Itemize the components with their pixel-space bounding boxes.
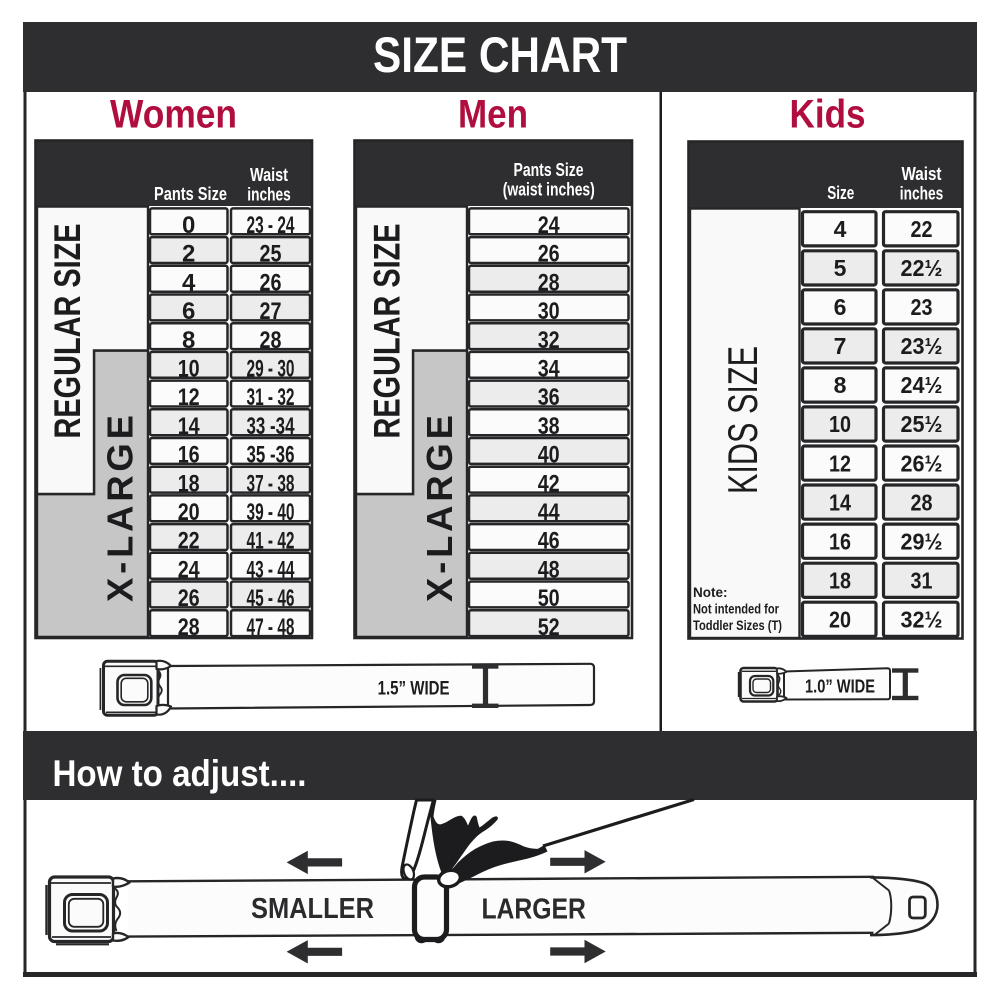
svg-text:25: 25 [260, 241, 282, 268]
svg-text:24: 24 [178, 556, 201, 583]
svg-text:Women: Women [110, 93, 237, 137]
svg-text:22½: 22½ [901, 255, 943, 281]
svg-text:inches: inches [900, 184, 944, 204]
svg-text:29½: 29½ [901, 528, 943, 554]
svg-text:Note:: Note: [693, 585, 728, 600]
svg-text:1.5” WIDE: 1.5” WIDE [378, 678, 450, 699]
svg-text:7: 7 [834, 333, 847, 359]
svg-text:18: 18 [829, 568, 851, 594]
svg-text:4: 4 [182, 269, 196, 296]
svg-text:39 - 40: 39 - 40 [247, 499, 295, 526]
svg-text:8: 8 [834, 372, 847, 398]
svg-text:6: 6 [182, 298, 195, 325]
svg-text:26: 26 [538, 241, 560, 268]
svg-text:18: 18 [178, 470, 200, 497]
svg-text:2: 2 [182, 241, 195, 268]
svg-text:35 -36: 35 -36 [247, 442, 295, 469]
svg-text:52: 52 [538, 614, 560, 641]
svg-text:14: 14 [829, 489, 851, 515]
svg-text:20: 20 [178, 499, 200, 526]
svg-text:5: 5 [834, 255, 847, 281]
svg-text:inches: inches [247, 185, 291, 205]
svg-text:26½: 26½ [901, 450, 943, 476]
svg-text:31: 31 [911, 568, 933, 594]
svg-text:0: 0 [182, 212, 195, 239]
svg-text:24½: 24½ [901, 372, 943, 398]
svg-text:33 -34: 33 -34 [247, 413, 295, 440]
svg-text:6: 6 [834, 294, 847, 320]
svg-text:SMALLER: SMALLER [251, 893, 374, 925]
svg-text:45 - 46: 45 - 46 [247, 585, 295, 612]
svg-text:1.0” WIDE: 1.0” WIDE [805, 676, 875, 696]
svg-text:27: 27 [260, 298, 282, 325]
svg-text:31 - 32: 31 - 32 [247, 384, 295, 411]
svg-text:34: 34 [538, 356, 561, 383]
svg-text:16: 16 [178, 442, 200, 469]
svg-text:22: 22 [911, 216, 933, 242]
svg-text:22: 22 [178, 528, 200, 555]
svg-text:Waist: Waist [250, 165, 288, 185]
svg-text:37 - 38: 37 - 38 [247, 470, 295, 497]
svg-text:30: 30 [538, 298, 560, 325]
svg-text:Toddler Sizes (T): Toddler Sizes (T) [693, 618, 782, 633]
svg-text:44: 44 [538, 499, 561, 526]
svg-text:43 - 44: 43 - 44 [247, 556, 295, 583]
svg-text:REGULAR SIZE: REGULAR SIZE [47, 224, 88, 439]
svg-text:48: 48 [538, 556, 560, 583]
svg-text:28: 28 [911, 489, 933, 515]
svg-text:23 - 24: 23 - 24 [247, 212, 295, 239]
svg-text:10: 10 [178, 356, 200, 383]
svg-text:8: 8 [182, 327, 195, 354]
svg-text:36: 36 [538, 384, 560, 411]
svg-text:28: 28 [538, 269, 560, 296]
svg-text:40: 40 [538, 442, 560, 469]
svg-text:Not intended for: Not intended for [693, 602, 780, 617]
svg-text:23: 23 [911, 294, 933, 320]
svg-text:12: 12 [178, 384, 200, 411]
svg-text:26: 26 [260, 269, 282, 296]
svg-text:50: 50 [538, 585, 560, 612]
svg-text:47 - 48: 47 - 48 [247, 614, 295, 641]
svg-text:10: 10 [829, 411, 851, 437]
svg-text:How to adjust....: How to adjust.... [53, 753, 307, 794]
svg-text:Kids: Kids [790, 93, 866, 137]
svg-text:28: 28 [178, 614, 200, 641]
svg-text:16: 16 [829, 528, 851, 554]
svg-text:Pants Size: Pants Size [154, 184, 227, 204]
svg-text:32: 32 [538, 327, 560, 354]
svg-text:46: 46 [538, 528, 560, 555]
svg-text:29 - 30: 29 - 30 [247, 356, 295, 383]
svg-text:20: 20 [829, 607, 851, 633]
svg-text:Size: Size [827, 183, 854, 203]
svg-text:Men: Men [458, 93, 528, 137]
svg-text:24: 24 [538, 212, 561, 239]
svg-text:12: 12 [829, 450, 851, 476]
svg-text:LARGER: LARGER [481, 894, 586, 926]
svg-text:REGULAR SIZE: REGULAR SIZE [367, 224, 408, 439]
svg-text:4: 4 [834, 216, 847, 242]
svg-text:KIDS SIZE: KIDS SIZE [719, 346, 766, 494]
svg-text:Pants Size: Pants Size [514, 160, 584, 180]
svg-text:26: 26 [178, 585, 200, 612]
svg-text:42: 42 [538, 470, 560, 497]
svg-text:(waist inches): (waist inches) [503, 180, 595, 200]
svg-text:28: 28 [260, 327, 282, 354]
svg-text:SIZE CHART: SIZE CHART [373, 27, 627, 83]
svg-text:38: 38 [538, 413, 560, 440]
svg-text:32½: 32½ [901, 607, 943, 633]
svg-text:14: 14 [178, 413, 201, 440]
svg-text:25½: 25½ [901, 411, 943, 437]
svg-text:Waist: Waist [902, 164, 942, 184]
svg-text:41 - 42: 41 - 42 [247, 528, 295, 555]
svg-text:23½: 23½ [901, 333, 943, 359]
